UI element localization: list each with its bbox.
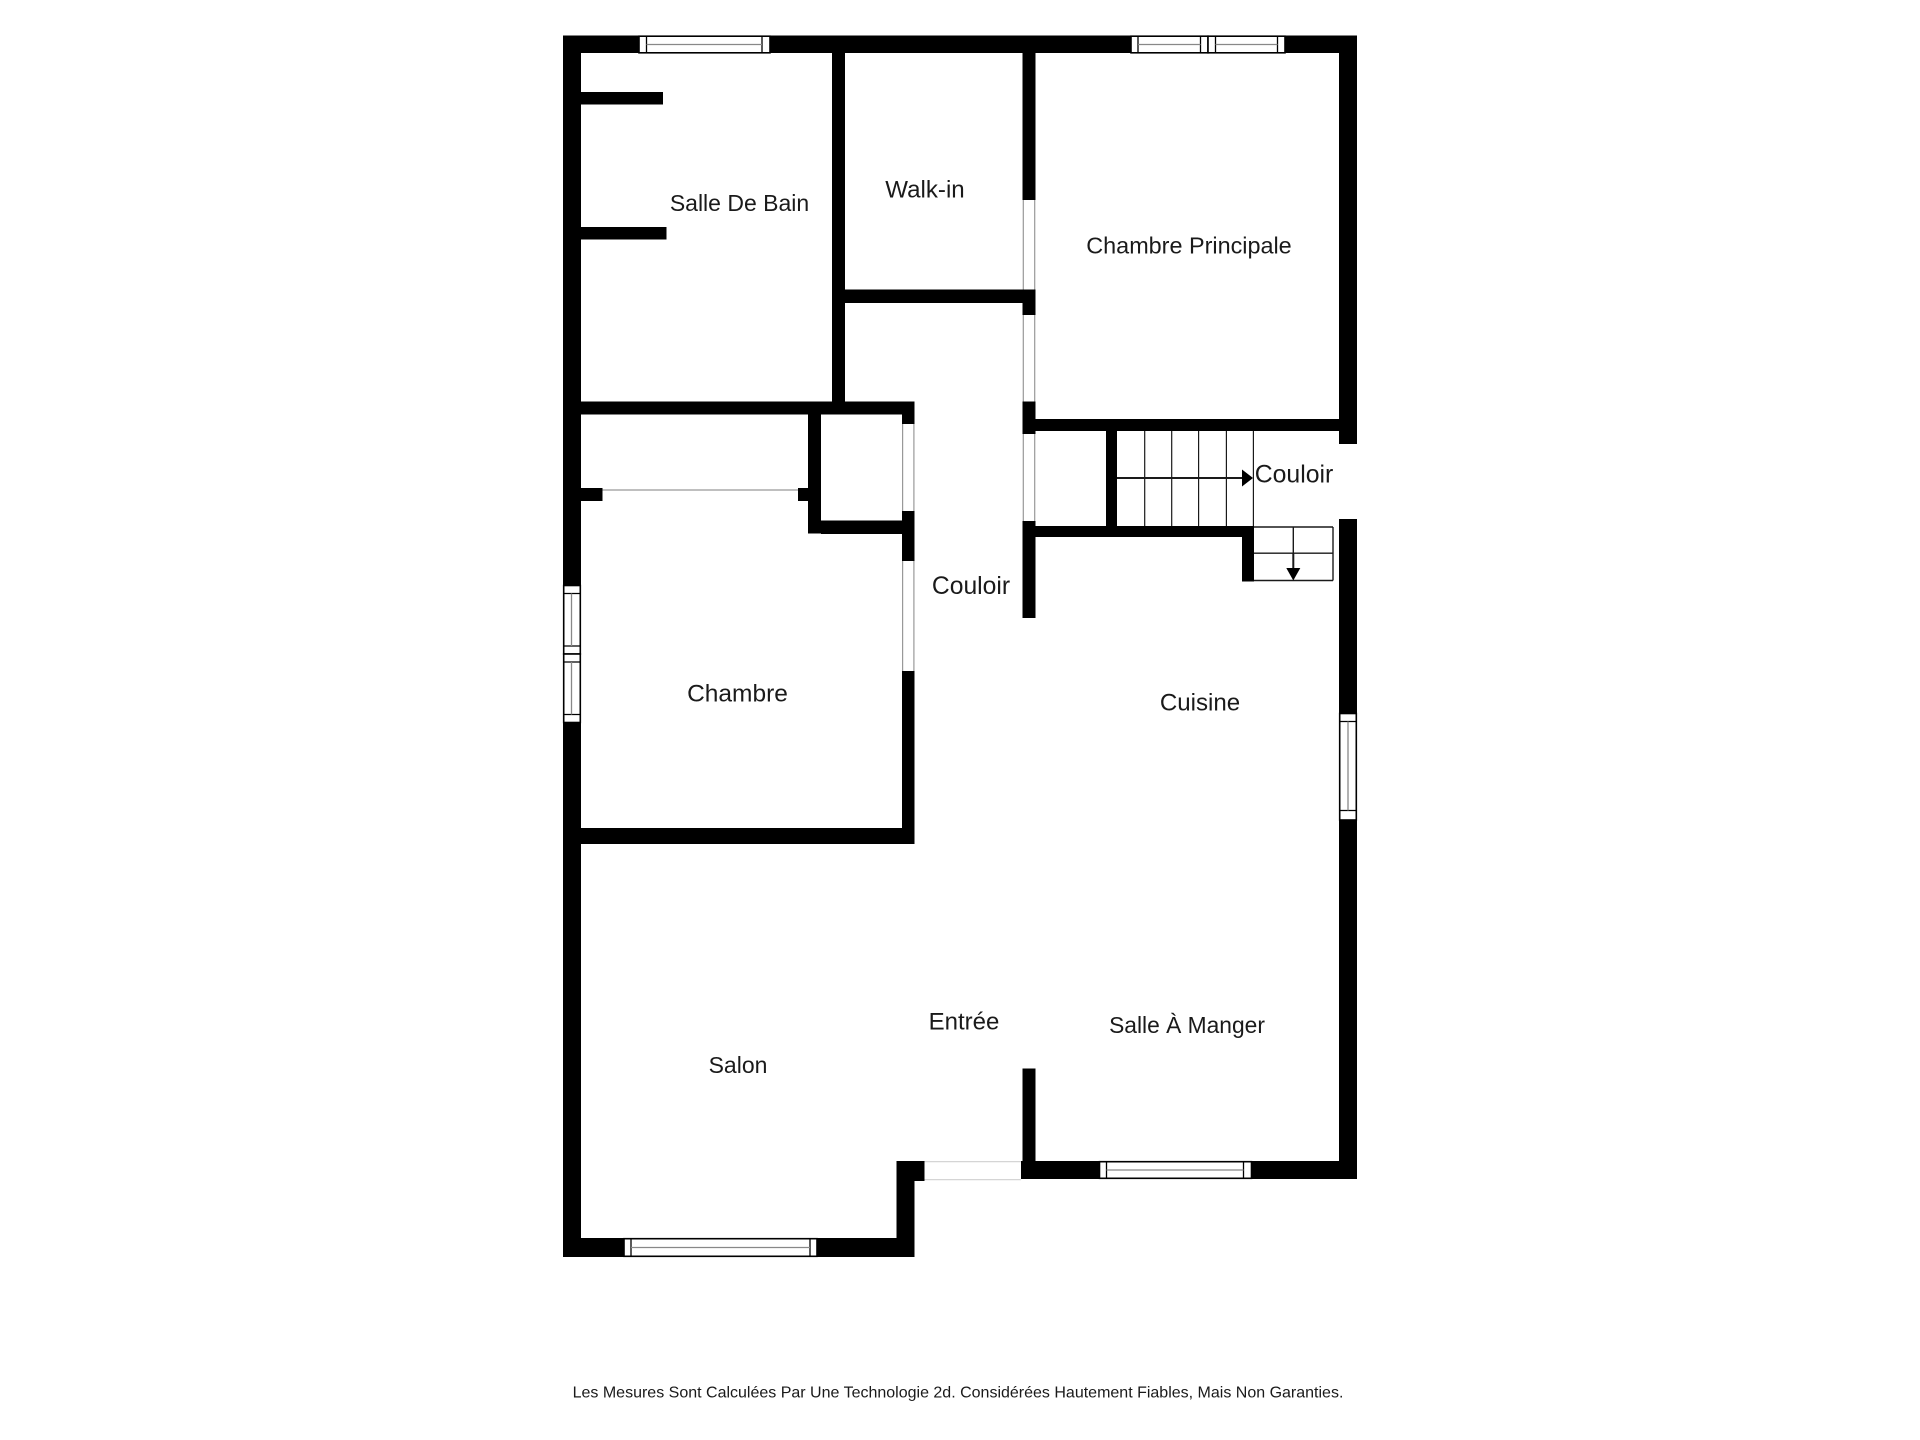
- svg-text:Les Mesures Sont Calculées Par: Les Mesures Sont Calculées Par Une Techn…: [573, 1385, 1344, 1402]
- svg-text:Walk-in: Walk-in: [885, 176, 964, 203]
- svg-text:Cuisine: Cuisine: [1160, 689, 1240, 716]
- svg-text:Salle À Manger: Salle À Manger: [1109, 1012, 1265, 1038]
- svg-text:Salle De Bain: Salle De Bain: [670, 190, 809, 216]
- svg-text:Chambre Principale: Chambre Principale: [1086, 233, 1291, 259]
- svg-text:Couloir: Couloir: [932, 573, 1010, 600]
- svg-text:Couloir: Couloir: [1255, 462, 1334, 489]
- svg-text:Salon: Salon: [709, 1052, 768, 1078]
- svg-text:Entrée: Entrée: [929, 1009, 1000, 1036]
- svg-text:Chambre: Chambre: [687, 680, 788, 707]
